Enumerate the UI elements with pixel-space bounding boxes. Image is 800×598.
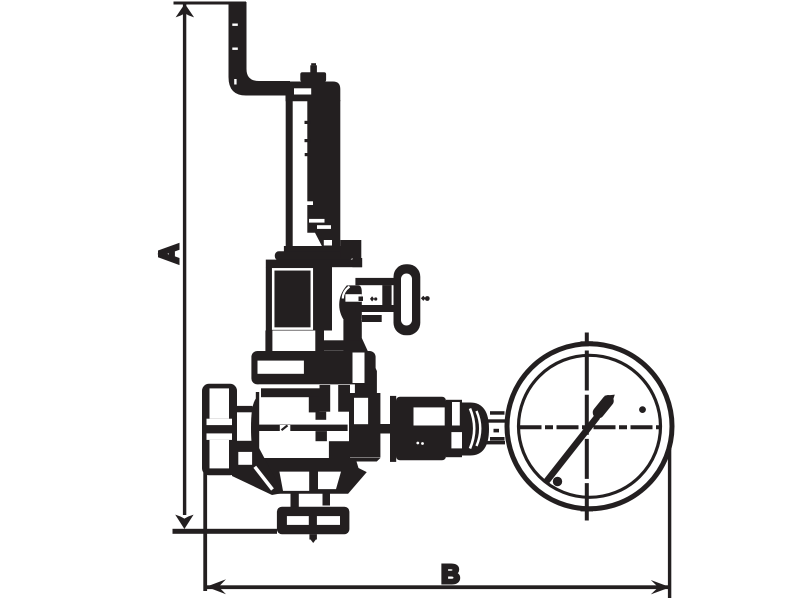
svg-text:B: B	[441, 559, 460, 589]
svg-text:A: A	[154, 244, 184, 264]
